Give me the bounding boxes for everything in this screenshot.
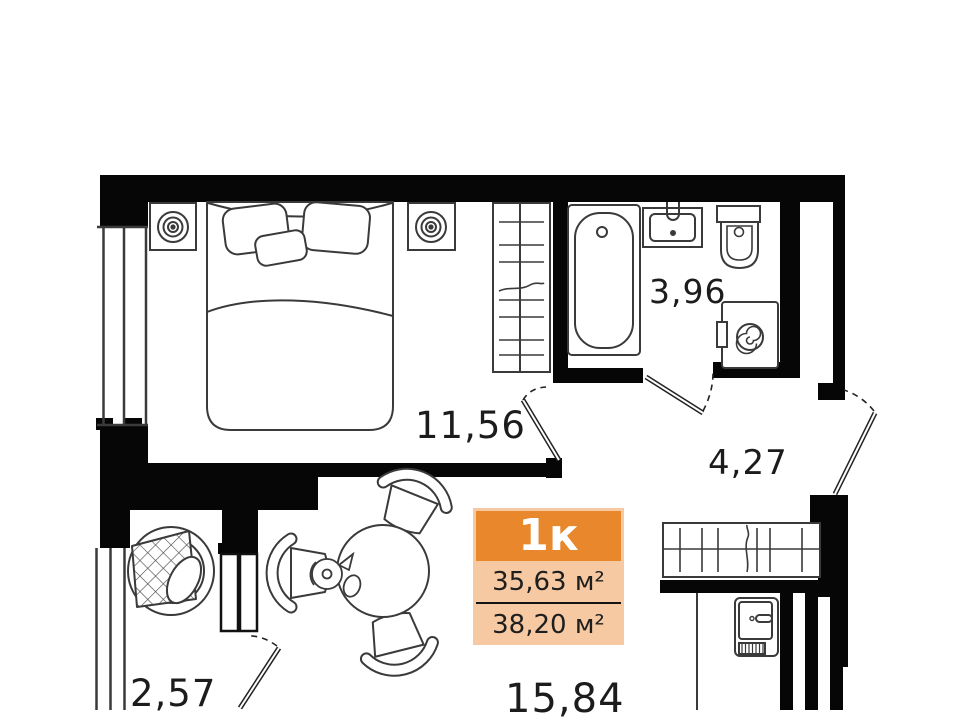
hallway-area-label: 4,27 bbox=[708, 443, 788, 483]
living-room-door-swing-icon bbox=[523, 387, 559, 460]
nightstand-lamp-icon bbox=[408, 203, 455, 250]
balcony-window-icon bbox=[97, 548, 125, 710]
dining-set bbox=[272, 464, 453, 677]
balcony-area-label: 2,57 bbox=[130, 672, 216, 715]
bathroom-area-label: 3,96 bbox=[649, 272, 726, 311]
entrance-door-swing-icon bbox=[835, 390, 875, 494]
shelf-wardrobe-icon bbox=[493, 203, 550, 372]
unit-total-area: 38,20 м² bbox=[476, 604, 621, 645]
floor-plan: 11,56 3,96 4,27 2,57 15,84 1к 35,63 м² 3… bbox=[0, 0, 960, 710]
refrigerator-icon bbox=[735, 598, 778, 656]
double-bed-icon bbox=[207, 201, 393, 430]
chair-icon bbox=[357, 607, 437, 678]
dining-table-icon bbox=[337, 525, 429, 617]
bathtub-icon bbox=[568, 205, 640, 355]
balcony-partition-window-icon bbox=[221, 554, 257, 631]
unit-type-badge: 1к bbox=[476, 511, 621, 561]
bathroom-door-swing-icon bbox=[646, 373, 713, 413]
balcony-door-swing-icon bbox=[240, 636, 279, 708]
hallway-closet-icon bbox=[663, 523, 820, 577]
bedroom-window-icon bbox=[97, 227, 148, 425]
unit-card: 1к 35,63 м² 38,20 м² bbox=[473, 508, 624, 645]
wash-basin-icon bbox=[643, 202, 702, 247]
nightstand-lamp-icon bbox=[150, 203, 196, 250]
unit-living-area: 35,63 м² bbox=[476, 561, 621, 602]
washing-machine-icon bbox=[717, 302, 778, 368]
wicker-armchair-icon bbox=[128, 527, 214, 615]
toilet-icon bbox=[717, 206, 760, 268]
bedroom-area-label: 11,56 bbox=[415, 404, 526, 447]
kitchen-living-area-label: 15,84 bbox=[505, 676, 625, 722]
